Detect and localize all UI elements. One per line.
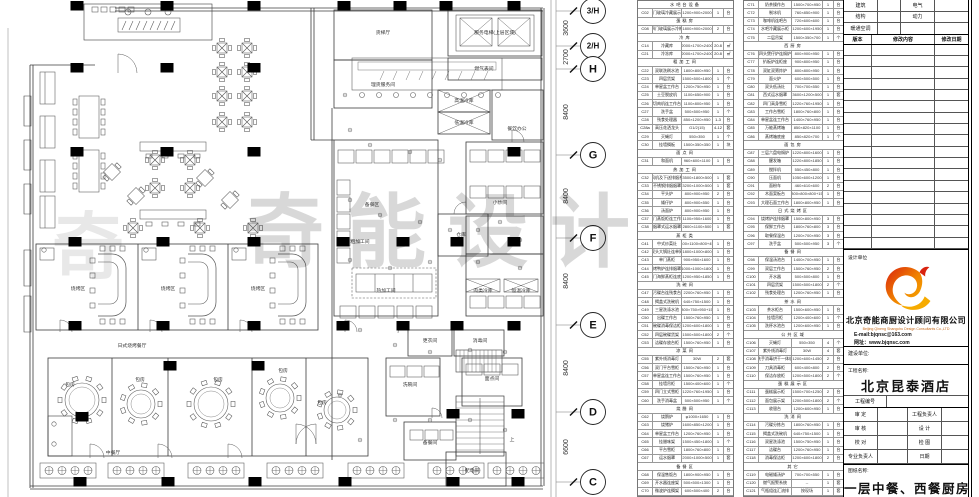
equipment-cell: 1200×600×1450 xyxy=(792,356,823,363)
equipment-cell: 1200×600×1950 xyxy=(792,26,823,33)
equipment-cell: 挂墙搁板 xyxy=(653,141,682,148)
equipment-cell: 1 xyxy=(823,59,834,66)
equipment-cell: 单星盆工作台 xyxy=(653,430,682,437)
equipment-cell: 收银台 xyxy=(759,405,792,412)
equipment-cell: 绞切肉机连工作台柜 xyxy=(653,100,682,107)
equipment-row: C117洁碟台1200×760×9501台 xyxy=(744,447,843,455)
equipment-cell: C37 xyxy=(638,216,653,223)
equipment-cell: 3 xyxy=(823,240,834,247)
equipment-cell: C50 xyxy=(638,315,653,322)
equipment-section-row: 粗加工间 xyxy=(638,59,733,67)
equipment-cell: C51 xyxy=(638,323,653,330)
equipment-cell: 1600×850×1200 xyxy=(682,422,713,429)
equipment-cell: 消毒保洁柜 xyxy=(759,455,792,462)
equipment-row: C76四头煲仔炉连焗炉800×900×9501台 xyxy=(744,51,843,59)
equipment-cell: 850×1200×950 xyxy=(682,117,713,124)
equipment-cell: 1 xyxy=(823,480,834,487)
equipment-cell: 700×700×550 xyxy=(792,84,823,91)
equipment-cell: 台 xyxy=(834,290,843,297)
equipment-cell: 2 xyxy=(823,389,834,396)
equipment-cell: C71 xyxy=(744,1,759,8)
equipment-row: C28残食处理器850×1200×9501-3台 xyxy=(638,117,733,125)
equipment-cell: 台 xyxy=(834,59,843,66)
equipment-row: C60洗手消毒盆500×500×9501个 xyxy=(638,397,733,405)
equipment-cell: 1200×700×950 xyxy=(792,232,823,239)
equipment-cell: 2 xyxy=(713,331,724,338)
equipment-row: C32鼓风机及下送排烟系统3500×1800×5001套 xyxy=(638,174,733,182)
equipment-cell: 1 xyxy=(823,323,834,330)
equipment-cell: 1 xyxy=(713,240,724,247)
equipment-cell: 台 xyxy=(724,9,733,16)
equipment-cell: C55 xyxy=(638,356,653,363)
signature-label: 审 核 xyxy=(844,422,878,435)
equipment-cell: 1 xyxy=(713,9,724,16)
revision-header-cell: 版本 xyxy=(844,35,872,44)
equipment-cell: 台 xyxy=(724,249,733,256)
equipment-cell: 1 xyxy=(713,257,724,264)
equipment-cell: 四门玻璃展示冷柜 xyxy=(653,26,682,33)
drawing-label: 图纸名称: xyxy=(844,465,968,474)
equipment-cell: 1-3 xyxy=(713,117,724,124)
equipment-section-row: 备餐间 xyxy=(744,249,843,257)
equipment-cell: 台 xyxy=(724,216,733,223)
revision-empty-row xyxy=(844,238,968,249)
project-name-section: 工程名称: 北京昆泰酒店 xyxy=(844,365,968,396)
equipment-cell: 平头炉 xyxy=(653,191,682,198)
equipment-cell: C82 xyxy=(744,100,759,107)
equipment-cell: 出碟工作台 xyxy=(653,315,682,322)
equipment-cell: 台 xyxy=(834,471,843,478)
equipment-cell: 个 xyxy=(834,133,843,140)
equipment-cell: 1200×760×950 xyxy=(792,290,823,297)
equipment-cell: 3200×1000×500 xyxy=(682,183,713,190)
equipment-cell: 1220×760×1950 xyxy=(682,389,713,396)
equipment-cell: 台 xyxy=(834,9,843,16)
equipment-cell: 1500×760×950 xyxy=(682,372,713,379)
equipment-cell: 2 xyxy=(713,26,724,33)
equipment-cell: 1 xyxy=(713,273,724,280)
equipment-cell: C68 xyxy=(638,471,653,478)
equipment-cell: 1 xyxy=(713,158,724,165)
equipment-row: C24单星盆工作台1200×750×9501台 xyxy=(638,84,733,92)
company-name-cn: 北京奇能商厨设计顾问有限公司 xyxy=(844,314,968,326)
equipment-row: C114污碟分拣台1800×760×9501台 xyxy=(744,422,843,430)
equipment-cell: ㎡ xyxy=(724,51,733,58)
equipment-cell: 台 xyxy=(834,125,843,132)
revision-empty-row xyxy=(844,215,968,226)
equipment-cell: 面包展示架 xyxy=(759,397,792,404)
equipment-cell: 污碟分拣台 xyxy=(759,422,792,429)
room-label: 配电间 xyxy=(465,467,480,474)
equipment-cell: 高压花洒龙头 xyxy=(653,125,682,132)
equipment-cell: 台 xyxy=(724,364,733,371)
equipment-cell: 1 xyxy=(713,471,724,478)
equipment-cell: C74 xyxy=(744,26,759,33)
equipment-cell: 台 xyxy=(834,183,843,190)
equipment-cell: 灭蝇灯 xyxy=(759,339,792,346)
signature-value xyxy=(878,422,908,435)
equipment-cell: C106 xyxy=(744,339,759,346)
equipment-row: C51碗碟消毒保洁柜1200×600×18001台 xyxy=(638,323,733,331)
equipment-row: C83工作台雪柜1800×760×8001台 xyxy=(744,108,843,116)
equipment-cell: 760×850×900 xyxy=(792,9,823,16)
equipment-cell: 洗杯水池台 xyxy=(759,323,792,330)
equipment-cell: 1200×400×600 xyxy=(792,315,823,322)
equipment-cell: 挂墙吊柜 xyxy=(653,381,682,388)
grid-bubble-label: 3/H xyxy=(587,7,600,16)
discipline-label: 暖通空调 xyxy=(844,23,878,34)
equipment-row: C47污碟台连残食台2200×760×9501台 xyxy=(638,290,733,298)
equipment-cell: 1800×800×800+150 xyxy=(792,191,823,198)
equipment-cell: 台 xyxy=(724,117,733,124)
equipment-cell: C70 xyxy=(638,488,653,495)
equipment-cell: 台 xyxy=(724,100,733,107)
equipment-row: C103茶水柜台1500×600×9501台 xyxy=(744,306,843,314)
equipment-cell: 1 xyxy=(713,315,724,322)
equipment-cell: 醒发箱 xyxy=(759,158,792,165)
equipment-cell: 500×500×950 xyxy=(682,108,713,115)
equipment-cell: 开水器 xyxy=(759,273,792,280)
equipment-cell: 单星盆连工作台 xyxy=(759,117,792,124)
equipment-cell: C35 xyxy=(638,199,653,206)
equipment-cell: 台 xyxy=(724,430,733,437)
equipment-cell: 制冰机 xyxy=(759,9,792,16)
equipment-cell: 万能蒸烤箱 xyxy=(759,125,792,132)
equipment-cell: 1220×760×1950 xyxy=(792,100,823,107)
equipment-cell: 不锈钢排烟烟罩 xyxy=(653,183,682,190)
equipment-cell: 1 xyxy=(823,26,834,33)
equipment-cell: 3 xyxy=(823,216,834,223)
equipment-row: C08四门玻璃展示冷柜1800×900×20002台 xyxy=(638,26,733,34)
equipment-cell: 台 xyxy=(724,26,733,33)
equipment-cell: 1800×900×950 xyxy=(682,471,713,478)
equipment-cell: 1 xyxy=(713,323,724,330)
equipment-cell: 个 xyxy=(834,282,843,289)
equipment-cell: C33 xyxy=(638,183,653,190)
equipment-cell: 1500×500×1800 xyxy=(682,331,713,338)
equipment-cell: C111 xyxy=(744,389,759,396)
equipment-cell: 台 xyxy=(834,364,843,371)
equipment-cell: C96 xyxy=(744,232,759,239)
equipment-cell: 1 xyxy=(823,18,834,25)
equipment-row: C55紫外线消毒灯30W2套 xyxy=(638,356,733,364)
equipment-cell: 奶茶操作台 xyxy=(759,1,792,8)
equipment-cell: 四层货架 xyxy=(759,282,792,289)
equipment-cell: C26 xyxy=(638,100,653,107)
equipment-row: C50出碟工作台1500×760×9501台 xyxy=(638,315,733,323)
equipment-cell: 800×800×950 xyxy=(792,67,823,74)
cad-sheet: 服务电梯(上层区域)燃气表间货梯厅理货服务间餐饮办公高温冷库低温冷库备餐区粗加工… xyxy=(0,0,979,497)
equipment-cell: 1500×760×950 xyxy=(792,265,823,272)
equipment-section-row: 西厨房 xyxy=(744,42,843,50)
equipment-cell: 燃气报警系统 xyxy=(759,480,792,487)
equipment-cell: 1500×350×700 xyxy=(792,34,823,41)
discipline-label: 结构 xyxy=(844,12,878,23)
equipment-cell: 1 xyxy=(713,364,724,371)
discipline-label xyxy=(901,23,935,34)
equipment-row: C79面火炉600×500×5001台 xyxy=(744,75,843,83)
equipment-cell: 1 xyxy=(713,84,724,91)
equipment-cell: 双头低汤灶 xyxy=(759,84,792,91)
equipment-cell: 1500×400×600 xyxy=(682,381,713,388)
equipment-cell: 1 xyxy=(823,9,834,16)
equipment-cell: 块 xyxy=(724,141,733,148)
equipment-cell: 四门海鲜蒸柜连底座 xyxy=(653,273,682,280)
equipment-cell: 烧烤炉连排烟罩 xyxy=(759,216,792,223)
equipment-cell: 四门立式雪柜 xyxy=(653,389,682,396)
equipment-section-row: 水吧台设备 xyxy=(638,1,733,9)
equipment-cell: C23 xyxy=(638,75,653,82)
company-website: 网址：www.bjqnsc.com xyxy=(844,339,968,346)
equipment-cell: C107 xyxy=(744,348,759,355)
signature-row: 专业负责人日期 xyxy=(844,450,968,464)
equipment-cell: 600×500×400 xyxy=(682,488,713,495)
equipment-row: C63烧猪炉1600×850×12001台 xyxy=(638,422,733,430)
equipment-cell: 1 xyxy=(713,108,724,115)
equipment-cell: 挂腊味架 xyxy=(653,438,682,445)
equipment-cell: C95 xyxy=(744,224,759,231)
equipment-cell: 30W xyxy=(792,348,823,355)
equipment-row: C66平台雪柜1800×760×8001台 xyxy=(638,447,733,455)
equipment-cell: 1200×760×950 xyxy=(682,430,713,437)
equipment-row: C87三层六盘电焗炉1220×800×16001台 xyxy=(744,150,843,158)
equipment-cell: 台 xyxy=(834,199,843,206)
room-label: 低温冷库 xyxy=(454,119,473,126)
equipment-cell: 500×500×950 xyxy=(792,240,823,247)
equipment-cell: C53 xyxy=(638,339,653,346)
equipment-cell: 烧猪炉 xyxy=(653,422,682,429)
equipment-cell: 1220×800×1600 xyxy=(792,150,823,157)
equipment-cell: 台 xyxy=(834,108,843,115)
equipment-row: C43单门蒸柜900×950×16001台 xyxy=(638,257,733,265)
equipment-cell: 残食处理台 xyxy=(759,290,792,297)
company-email: E-mail:bjqnsc@163.com xyxy=(844,332,968,338)
equipment-cell: 冷藏库 xyxy=(653,42,682,49)
equipment-cell: C44 xyxy=(638,265,653,272)
equipment-cell: 洗手盆 xyxy=(759,240,792,247)
equipment-cell: 1500×700×950 xyxy=(792,1,823,8)
equipment-row: C42双头大锅灶连单尾1800×1000×8001台 xyxy=(638,249,733,257)
equipment-cell: 台 xyxy=(834,174,843,181)
grid-bubble-label: D xyxy=(589,407,597,419)
equipment-cell: 个 xyxy=(724,75,733,82)
equipment-row: C99双层工作台1500×760×9502台 xyxy=(744,265,843,273)
equipment-cell: 1 xyxy=(713,75,724,82)
equipment-row: C27洗手盆500×500×9501个 xyxy=(638,108,733,116)
signature-label: 日期 xyxy=(908,450,942,463)
equipment-cell: 1500×600×950 xyxy=(792,306,823,313)
equipment-cell: 2 xyxy=(823,265,834,272)
equipment-cell: 640×750×1500 xyxy=(682,298,713,305)
equipment-cell: 工作台雪柜 xyxy=(759,108,792,115)
revision-empty-row xyxy=(844,79,968,90)
equipment-cell: 套 xyxy=(834,480,843,487)
discipline-label: 动力 xyxy=(901,12,935,23)
equipment-cell: 1 xyxy=(823,34,834,41)
equipment-cell: C64 xyxy=(638,430,653,437)
equipment-cell: 中式炒菜灶 xyxy=(653,240,682,247)
equipment-cell: C29 xyxy=(638,133,653,140)
equipment-cell: C66 xyxy=(638,447,653,454)
equipment-cell: 1 xyxy=(713,290,724,297)
equipment-cell: 900×800×950 xyxy=(792,59,823,66)
equipment-row: C107紫外线消毒灯30W4套 xyxy=(744,348,843,356)
equipment-cell: 1200×600×950 xyxy=(792,405,823,412)
equipment-row: C77扒板炉连柜座900×800×9501台 xyxy=(744,59,843,67)
revision-empty-row xyxy=(844,67,968,78)
equipment-row: C112面包展示架1200×500×18002个 xyxy=(744,397,843,405)
equipment-row: C22双联洗刷水池1800×800×9501台 xyxy=(638,67,733,75)
equipment-row: C88醒发箱1220×800×18501台 xyxy=(744,158,843,166)
equipment-cell: 台 xyxy=(834,18,843,25)
room-label: 肉类冷库 xyxy=(473,287,492,294)
equipment-row: C64单星盆工作台1200×760×9501台 xyxy=(638,430,733,438)
room-label: 包房 xyxy=(278,367,288,374)
equipment-row: C119电磁矮汤炉700×700×5501台 xyxy=(744,471,843,479)
equipment-cell: 个 xyxy=(834,240,843,247)
equipment-section-row: 茶水间 xyxy=(744,298,843,306)
equipment-cell: 保温售饭台 xyxy=(653,471,682,478)
equipment-cell: 台 xyxy=(724,240,733,247)
room-label: 消毒间 xyxy=(473,337,488,344)
equipment-cell: 1500×350×350 xyxy=(682,141,713,148)
equipment-cell: 台 xyxy=(724,158,733,165)
equipment-cell: C63 xyxy=(638,422,653,429)
equipment-cell: 烟罩式运水烟罩 xyxy=(653,224,682,231)
room-label: 包房 xyxy=(135,376,145,383)
equipment-cell: 双联洗刷水池 xyxy=(653,67,682,74)
dimension-value: 8400 xyxy=(563,273,570,289)
equipment-cell: 720×600×600 xyxy=(792,18,823,25)
equipment-cell: 台 xyxy=(724,298,733,305)
equipment-row: C52四层碗碟货架1500×500×18002个 xyxy=(638,331,733,339)
equipment-cell: C30 xyxy=(638,141,653,148)
equipment-cell: 台 xyxy=(724,323,733,330)
discipline-value xyxy=(935,23,968,34)
equipment-row: C104挂墙吊柜1200×400×6001个 xyxy=(744,315,843,323)
equipment-row: C81西式运水烟罩3600×1200×5001套 xyxy=(744,92,843,100)
build-unit-label: 建设单位: xyxy=(844,347,968,365)
equipment-cell: 台 xyxy=(834,117,843,124)
equipment-cell: 个 xyxy=(834,34,843,41)
equipment-cell: C93 xyxy=(744,199,759,206)
equipment-cell: 四门高身雪柜 xyxy=(759,100,792,107)
equipment-cell: C94 xyxy=(744,216,759,223)
equipment-cell: 1 xyxy=(823,438,834,445)
equipment-cell: 冷冻库 xyxy=(653,51,682,58)
equipment-cell: 茶水柜台 xyxy=(759,306,792,313)
equipment-cell: 1 xyxy=(823,1,834,8)
equipment-row: C48揭盖式洗碗机640×750×15001台 xyxy=(638,298,733,306)
equipment-cell: 台 xyxy=(834,216,843,223)
room-label: 货梯厅 xyxy=(376,29,391,36)
design-unit-label: 设计单位 xyxy=(844,252,968,261)
equipment-cell: 1 xyxy=(823,273,834,280)
signature-value xyxy=(942,422,968,435)
revision-empty-row xyxy=(844,169,968,180)
equipment-cell: 1 xyxy=(713,249,724,256)
project-label: 工程名称: xyxy=(844,365,968,374)
equipment-cell: 四层碗碟货架 xyxy=(653,331,682,338)
equipment-cell: C120 xyxy=(744,480,759,487)
signature-value xyxy=(878,408,908,421)
equipment-cell: 微波炉连搁架 xyxy=(653,488,682,495)
equipment-cell: 1 xyxy=(713,430,724,437)
equipment-cell: 搅拌机 xyxy=(759,166,792,173)
equipment-cell: 2 xyxy=(823,183,834,190)
equipment-cell: 洗手盆 xyxy=(653,108,682,115)
equipment-cell: 2000×1700×2400 xyxy=(682,51,713,58)
equipment-row: C109刀具消毒柜600×400×8002台 xyxy=(744,364,843,372)
room-label: 高温冷库 xyxy=(454,97,473,104)
equipment-cell: C36 xyxy=(638,207,653,214)
equipment-cell: 台 xyxy=(724,480,733,487)
equipment-cell: C81 xyxy=(744,92,759,99)
equipment-cell: C109 xyxy=(744,364,759,371)
equipment-cell: 1 xyxy=(713,381,724,388)
equipment-row: C59四门立式雪柜1220×760×19501台 xyxy=(638,389,733,397)
equipment-cell: 套 xyxy=(834,92,843,99)
equipment-cell: C116 xyxy=(744,438,759,445)
equipment-cell: 残食处理器 xyxy=(653,117,682,124)
equipment-cell: 汤面炉 xyxy=(653,207,682,214)
equipment-cell: 2 xyxy=(823,372,834,379)
equipment-cell: 个 xyxy=(724,331,733,338)
equipment-cell: 取餐保温台 xyxy=(759,232,792,239)
equipment-cell: 1 xyxy=(823,117,834,124)
equipment-cell: 台 xyxy=(724,199,733,206)
equipment-cell: C115 xyxy=(744,430,759,437)
equipment-cell: 1800×800×950 xyxy=(682,67,713,74)
room-label: 日式烧烤餐厅 xyxy=(118,342,147,349)
equipment-cell: C02 xyxy=(638,9,653,16)
equipment-cell: 1500×750×950 xyxy=(792,438,823,445)
equipment-cell: 大理石面工作台 xyxy=(759,199,792,206)
equipment-cell: 1500×760×950 xyxy=(682,315,713,322)
equipment-cell: C24 xyxy=(638,84,653,91)
equipment-cell: 个 xyxy=(834,339,843,346)
equipment-cell: 1200×600×1800 xyxy=(792,455,823,462)
equipment-cell: 台 xyxy=(724,414,733,421)
equipment-cell: 1 xyxy=(823,75,834,82)
equipment-cell: C101 xyxy=(744,282,759,289)
equipment-cell: 1200×500×1800 xyxy=(792,397,823,404)
equipment-cell: 运水烟罩 xyxy=(653,455,682,462)
dimension-value: 8400 xyxy=(563,188,570,204)
equipment-row: C23四层货架1500×500×18001个 xyxy=(638,75,733,83)
revision-empty-row xyxy=(844,226,968,237)
room-label: 中餐厅 xyxy=(106,449,121,456)
equipment-cell: 台 xyxy=(834,356,843,363)
equipment-cell: 揭盖式洗碗机 xyxy=(653,298,682,305)
equipment-cell: 双星洗涤池 xyxy=(759,438,792,445)
equipment-cell: 台 xyxy=(834,430,843,437)
equipment-cell: 套 xyxy=(724,455,733,462)
equipment-cell: 1200×600×1800 xyxy=(682,323,713,330)
room-label: 烧烤区 xyxy=(251,285,266,292)
equipment-cell: 台 xyxy=(724,257,733,264)
equipment-cell: 台 xyxy=(834,232,843,239)
equipment-cell: 1400×760×950 xyxy=(792,117,823,124)
equipment-row: C33不锈钢排烟烟罩3200×1000×5001套 xyxy=(638,183,733,191)
equipment-cell: 台 xyxy=(834,67,843,74)
equipment-cell: 1800×800×950 xyxy=(792,199,823,206)
equipment-cell: 1 xyxy=(823,108,834,115)
room-label: 备餐区 xyxy=(365,201,380,208)
equipment-cell: 1 xyxy=(713,372,724,379)
equipment-cell: 1400×700×950 xyxy=(792,257,823,264)
room-label: 仓库 xyxy=(456,231,466,238)
